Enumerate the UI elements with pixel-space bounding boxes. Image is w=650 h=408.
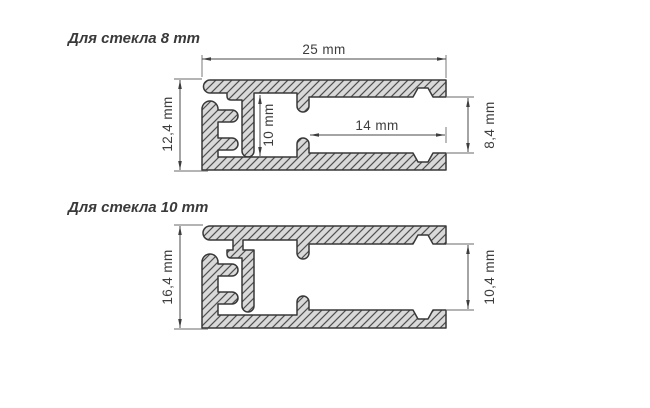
dim-width-25-label: 25 mm — [302, 42, 345, 57]
dim-depth-14-label: 14 mm — [355, 118, 398, 133]
profile2-top-flange — [203, 226, 446, 312]
profile1-drawing — [202, 80, 446, 170]
dim-depth-14: 14 mm — [310, 118, 446, 143]
profile1-title: Для стекла 8 mm — [66, 30, 200, 47]
dim-width-25: 25 mm — [202, 42, 446, 78]
technical-diagram: Для стекла 8 mm 25 mm 12,4 mm 10 mm — [0, 0, 650, 408]
dim-height-124-label: 12,4 mm — [160, 96, 175, 151]
dim-height-124: 12,4 mm — [160, 79, 208, 171]
profile2-drawing — [202, 226, 446, 328]
drawing-canvas: Для стекла 8 mm 25 mm 12,4 mm 10 mm — [0, 0, 650, 408]
dim-height-164-label: 16,4 mm — [160, 249, 175, 304]
dim-inner-10: 10 mm — [260, 95, 276, 156]
dim-inner-10-label: 10 mm — [261, 103, 276, 146]
profile2-base — [202, 254, 446, 328]
dim-height-164: 16,4 mm — [160, 225, 208, 329]
dim-opening-84: 8,4 mm — [447, 97, 497, 153]
profile1-top-flange — [204, 80, 447, 157]
dim-opening-84-label: 8,4 mm — [482, 101, 497, 148]
dim-opening-104-label: 10,4 mm — [482, 249, 497, 304]
dim-opening-104: 10,4 mm — [447, 244, 497, 310]
profile2-title: Для стекла 10 mm — [66, 199, 208, 216]
